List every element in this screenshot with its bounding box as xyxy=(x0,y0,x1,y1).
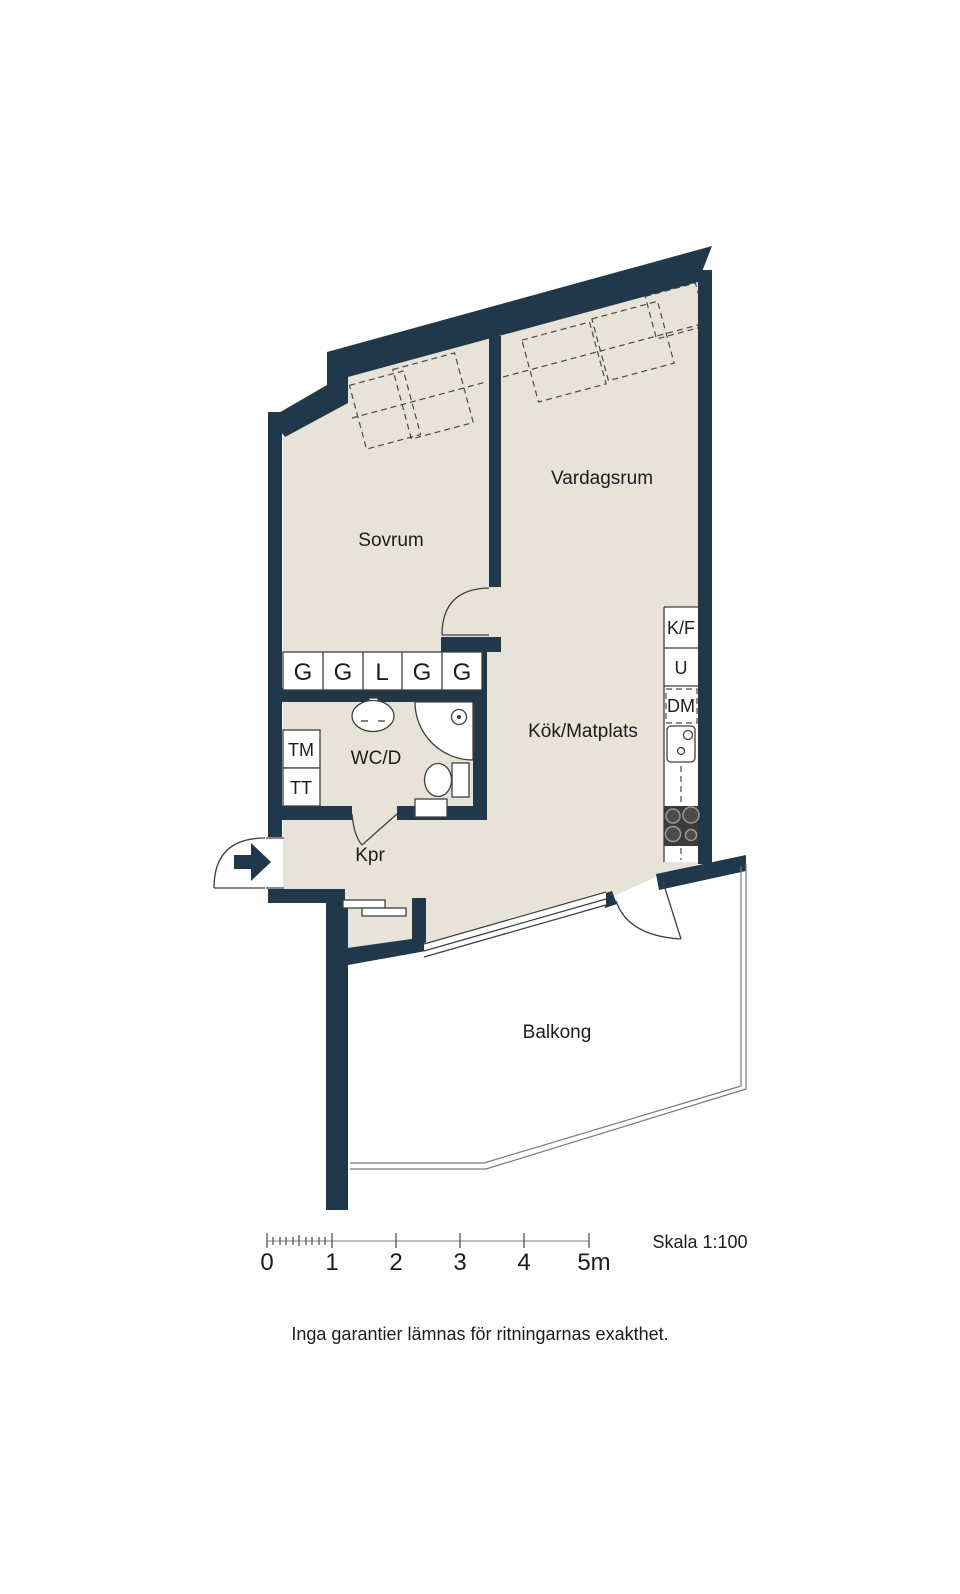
room-label-balkong: Balkong xyxy=(523,1022,592,1043)
dishwasher-label: DM xyxy=(667,696,695,716)
scale-tick-2: 2 xyxy=(389,1249,402,1276)
wall-partition xyxy=(489,336,501,587)
laundry-units: TM TT xyxy=(283,730,320,806)
oven-label: U xyxy=(675,658,688,678)
room-label-wc-d: WC/D xyxy=(351,748,402,769)
threshold xyxy=(415,799,447,817)
scale-tick-1: 1 xyxy=(325,1249,338,1276)
scale-bar: 0 1 2 3 4 5m Skala 1:100 xyxy=(260,1232,747,1276)
toilet-bowl xyxy=(425,764,452,797)
kitchen-counter: K/F U DM xyxy=(664,607,699,862)
disclaimer-text: Inga garantier lämnas för ritningarnas e… xyxy=(291,1324,668,1344)
entry-arrow-icon xyxy=(234,843,271,881)
floorplan-page: G G L G G TM TT xyxy=(0,0,960,1594)
dryer-label: TT xyxy=(290,778,312,798)
fridge-freezer-label: K/F xyxy=(667,618,695,638)
scale-tick-3: 3 xyxy=(453,1249,466,1276)
scale-tick-5m: 5m xyxy=(577,1249,610,1276)
washer-label: TM xyxy=(288,740,314,760)
room-label-kpr: Kpr xyxy=(355,845,385,866)
room-label-sovrum: Sovrum xyxy=(358,530,423,551)
room-label-vardagsrum: Vardagsrum xyxy=(551,468,653,489)
wall-kpr-bottom xyxy=(268,889,345,903)
wall-left xyxy=(268,412,282,837)
wall-wc-bottom-left xyxy=(268,806,352,820)
wall-under-bedroom-door xyxy=(441,637,501,652)
wardrobe-cell-label: L xyxy=(375,659,388,686)
wardrobe-cell-label: G xyxy=(453,659,472,686)
balcony-door-leaf xyxy=(663,882,681,939)
toilet-tank xyxy=(452,763,469,797)
wash-basin xyxy=(352,701,394,732)
room-label-kok-matplats: Kök/Matplats xyxy=(528,721,638,742)
scale-tick-4: 4 xyxy=(517,1249,530,1276)
wardrobe-row: G G L G G xyxy=(283,652,482,690)
wall-right xyxy=(698,270,712,864)
wardrobe-cell-label: G xyxy=(413,659,432,686)
floorplan-svg: G G L G G TM TT xyxy=(0,0,960,1594)
wardrobe-cell-label: G xyxy=(294,659,313,686)
scale-text: Skala 1:100 xyxy=(652,1232,747,1252)
wardrobe-cell-label: G xyxy=(334,659,353,686)
wall-alcove-stub xyxy=(412,898,426,948)
scale-tick-0: 0 xyxy=(260,1249,273,1276)
entry-door xyxy=(214,838,284,888)
